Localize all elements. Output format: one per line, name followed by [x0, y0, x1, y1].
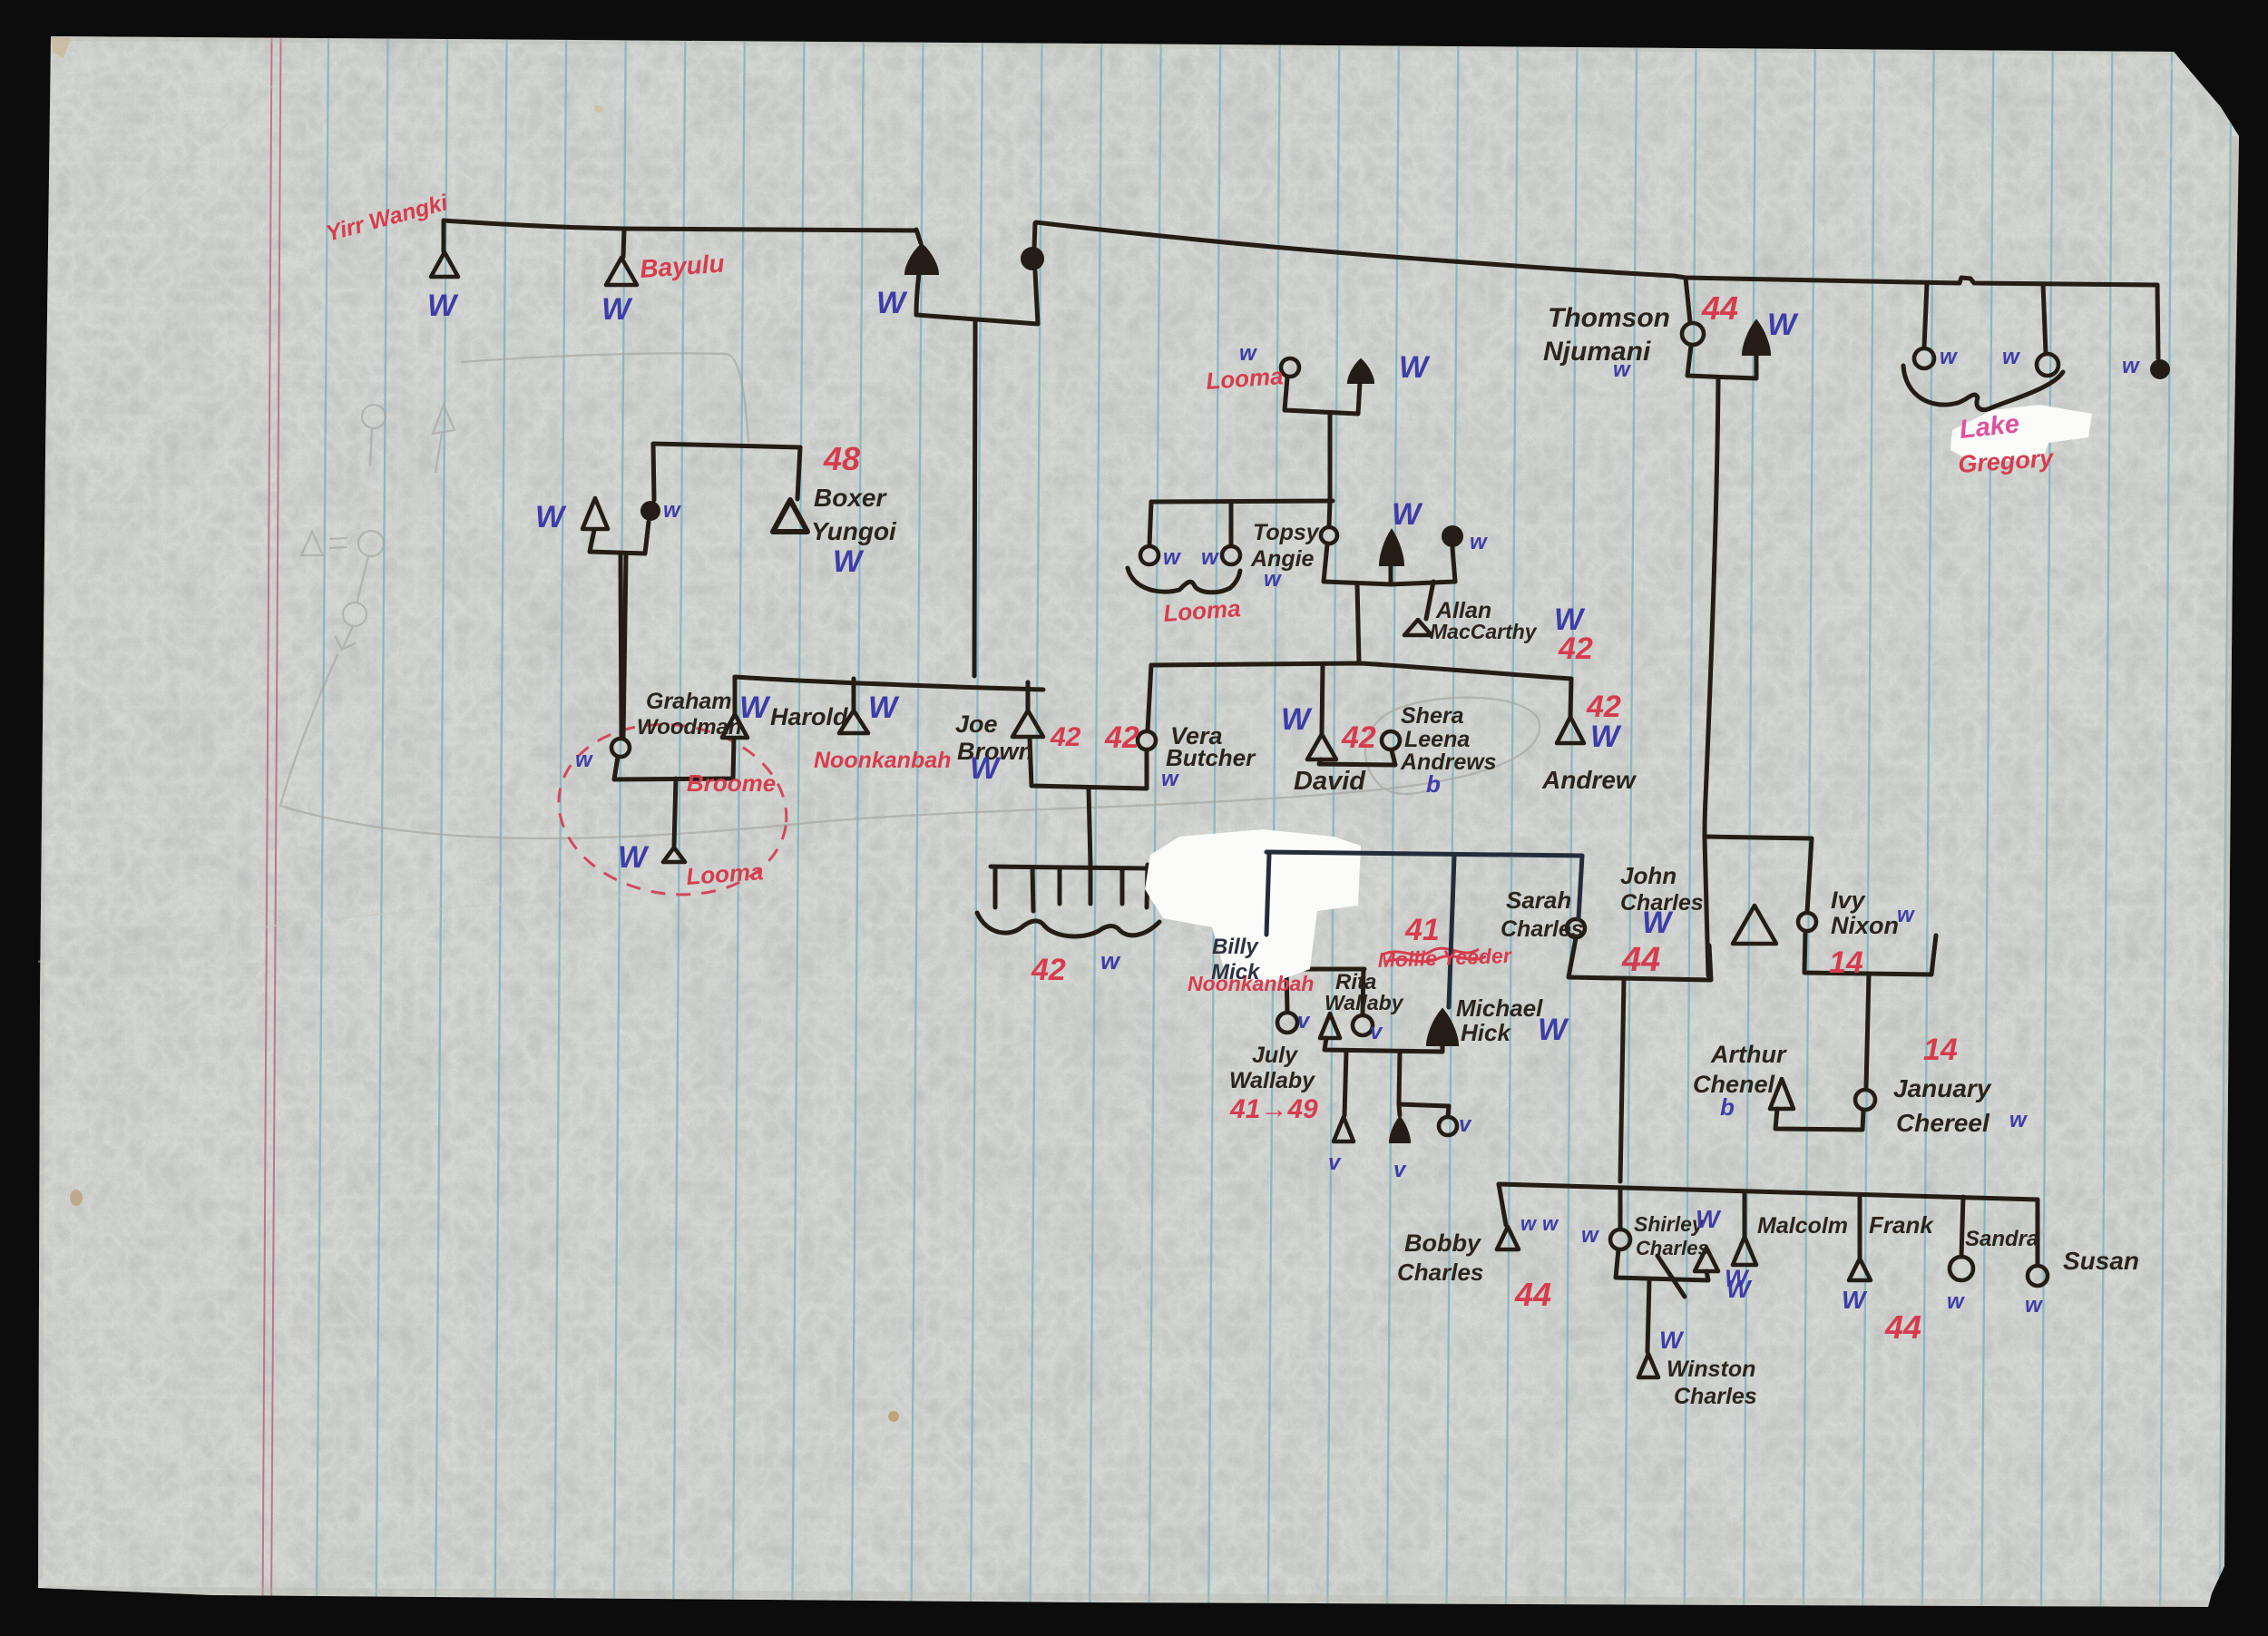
svg-text:w: w [1897, 903, 1915, 927]
svg-text:v: v [1459, 1112, 1472, 1137]
svg-text:44: 44 [1701, 289, 1738, 327]
svg-text:w: w [1542, 1212, 1559, 1235]
svg-text:W: W [1767, 308, 1799, 342]
svg-text:Chereel: Chereel [1896, 1109, 1990, 1137]
svg-text:Charles: Charles [1674, 1384, 1757, 1409]
svg-text:w: w [1264, 567, 1282, 592]
svg-text:Charles: Charles [1397, 1259, 1483, 1286]
svg-text:v: v [1328, 1151, 1342, 1175]
svg-text:Shera: Shera [1401, 703, 1464, 729]
svg-text:w: w [1161, 767, 1179, 791]
svg-text:Joe: Joe [955, 710, 998, 738]
svg-text:44: 44 [1884, 1308, 1921, 1346]
svg-text:Bobby: Bobby [1404, 1229, 1482, 1257]
svg-text:v: v [1393, 1158, 1407, 1182]
svg-text:MacCarthy: MacCarthy [1430, 620, 1538, 643]
svg-text:Leena: Leena [1404, 727, 1470, 752]
svg-text:W: W [427, 289, 459, 323]
svg-text:W: W [1842, 1286, 1868, 1314]
svg-text:48: 48 [823, 440, 860, 477]
svg-text:David: David [1294, 767, 1366, 796]
svg-text:January: January [1893, 1074, 1992, 1102]
svg-text:Andrew: Andrew [1541, 766, 1637, 794]
svg-text:w: w [1947, 1289, 1965, 1314]
svg-text:Ivy: Ivy [1831, 887, 1867, 914]
svg-text:W: W [1399, 350, 1431, 385]
svg-text:Woodman: Woodman [637, 715, 742, 740]
svg-text:Andrews: Andrews [1400, 749, 1497, 775]
svg-text:w: w [1940, 345, 1958, 369]
svg-text:Billy: Billy [1212, 935, 1259, 959]
svg-text:W: W [876, 286, 908, 320]
svg-text:John: John [1620, 862, 1677, 889]
svg-text:W: W [1590, 720, 1622, 754]
svg-text:Broome: Broome [687, 769, 776, 797]
svg-text:W: W [1696, 1205, 1722, 1233]
svg-text:14: 14 [1923, 1033, 1958, 1067]
svg-text:v: v [1370, 1020, 1383, 1044]
svg-text:Looma: Looma [685, 857, 764, 890]
svg-text:Charles: Charles [1501, 916, 1584, 942]
svg-text:Yungoi: Yungoi [811, 517, 897, 545]
svg-text:Nixon: Nixon [1831, 912, 1899, 939]
svg-text:w: w [1470, 530, 1488, 554]
svg-text:42: 42 [1341, 720, 1376, 755]
svg-text:W: W [1659, 1327, 1685, 1354]
svg-text:Winston: Winston [1667, 1357, 1755, 1382]
svg-text:W: W [739, 691, 771, 725]
svg-text:W: W [1392, 497, 1423, 532]
svg-text:Looma: Looma [1162, 594, 1241, 627]
svg-text:Malcolm: Malcolm [1757, 1213, 1848, 1239]
svg-text:W: W [970, 751, 1002, 786]
svg-text:Bayulu: Bayulu [639, 250, 725, 283]
svg-text:41→49: 41→49 [1229, 1094, 1318, 1124]
svg-text:July: July [1252, 1043, 1298, 1068]
svg-text:W: W [1538, 1013, 1569, 1047]
svg-text:Charles: Charles [1636, 1237, 1709, 1259]
svg-text:w: w [1163, 545, 1181, 570]
svg-text:w: w [1100, 947, 1121, 975]
svg-text:Mollie Yeeder: Mollie Yeeder [1377, 944, 1512, 972]
svg-text:w: w [1239, 341, 1257, 366]
svg-text:w: w [1581, 1223, 1599, 1248]
svg-text:W: W [1281, 702, 1313, 737]
svg-text:W: W [601, 292, 633, 327]
svg-text:W: W [1554, 602, 1586, 637]
svg-text:W: W [833, 544, 865, 579]
svg-text:Butcher: Butcher [1166, 744, 1256, 771]
svg-text:w: w [1613, 358, 1631, 382]
svg-text:Shirley: Shirley [1634, 1212, 1705, 1236]
svg-text:Sarah: Sarah [1506, 887, 1571, 914]
svg-text:W: W [868, 691, 900, 725]
svg-text:Thomson: Thomson [1548, 303, 1670, 333]
svg-text:Sandra: Sandra [1965, 1227, 2038, 1251]
svg-text:Njumani: Njumani [1543, 337, 1651, 367]
svg-text:42: 42 [1031, 953, 1066, 987]
svg-text:W: W [535, 500, 567, 534]
svg-text:W: W [1726, 1275, 1753, 1303]
svg-text:42: 42 [1050, 722, 1081, 752]
svg-text:w: w [575, 748, 593, 772]
svg-text:14: 14 [1829, 945, 1863, 980]
svg-text:Wallaby: Wallaby [1229, 1068, 1315, 1093]
svg-text:w: w [1201, 545, 1219, 570]
svg-text:Harold: Harold [770, 703, 848, 730]
svg-text:Noonkanbah: Noonkanbah [814, 748, 951, 773]
svg-text:Frank: Frank [1869, 1211, 1934, 1239]
svg-text:Michael: Michael [1456, 994, 1543, 1022]
svg-text:W: W [1642, 906, 1674, 940]
svg-text:44: 44 [1621, 941, 1660, 979]
svg-text:w: w [2009, 1108, 2028, 1132]
svg-text:Arthur: Arthur [1710, 1041, 1787, 1068]
svg-text:v: v [1297, 1009, 1311, 1034]
svg-text:w: w [2122, 354, 2140, 378]
svg-text:Susan: Susan [2063, 1247, 2139, 1275]
svg-text:Topsy: Topsy [1253, 520, 1320, 545]
svg-text:w: w [2002, 345, 2020, 369]
svg-text:Graham: Graham [646, 689, 731, 714]
svg-text:Looma: Looma [1205, 362, 1284, 395]
svg-text:41: 41 [1404, 913, 1440, 947]
svg-text:W: W [618, 840, 650, 875]
svg-text:b: b [1720, 1093, 1735, 1121]
svg-text:w: w [2025, 1293, 2043, 1318]
svg-text:Hick: Hick [1461, 1019, 1511, 1046]
svg-text:44: 44 [1514, 1276, 1551, 1313]
svg-text:42: 42 [1104, 720, 1139, 755]
svg-text:b: b [1426, 770, 1441, 798]
svg-text:w: w [1520, 1212, 1538, 1235]
svg-text:Mick: Mick [1211, 960, 1261, 985]
svg-text:Boxer: Boxer [814, 484, 887, 512]
svg-text:Wallaby: Wallaby [1325, 991, 1404, 1014]
svg-text:w: w [663, 498, 681, 523]
svg-text:Angie: Angie [1250, 546, 1315, 572]
